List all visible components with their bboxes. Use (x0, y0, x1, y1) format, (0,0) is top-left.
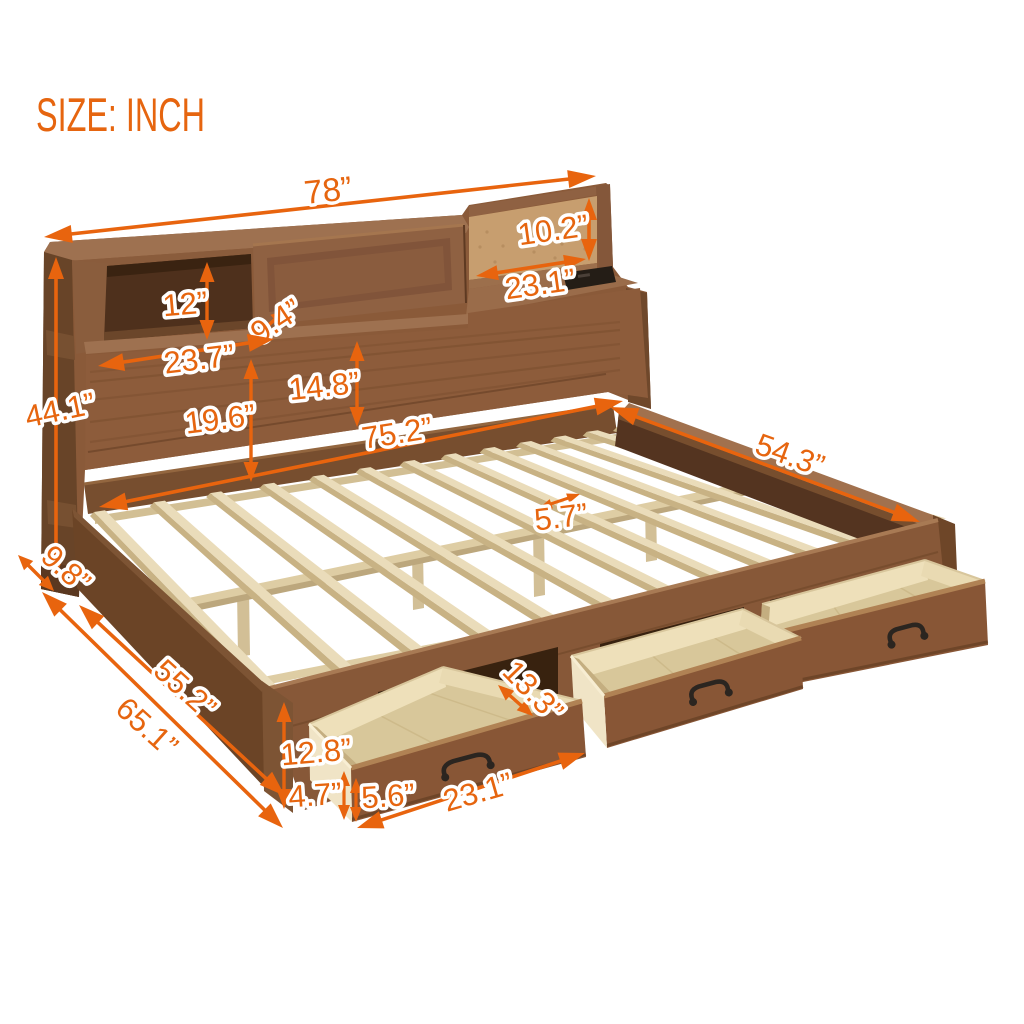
svg-text:5.7”: 5.7” (532, 496, 589, 537)
svg-text:14.8”: 14.8” (287, 365, 361, 407)
svg-text:SIZE: INCH: SIZE: INCH (36, 88, 205, 141)
svg-text:12.8”: 12.8” (279, 731, 352, 772)
svg-text:78”: 78” (302, 169, 353, 211)
svg-text:12”: 12” (161, 285, 209, 324)
svg-text:4.7”: 4.7” (287, 776, 343, 815)
